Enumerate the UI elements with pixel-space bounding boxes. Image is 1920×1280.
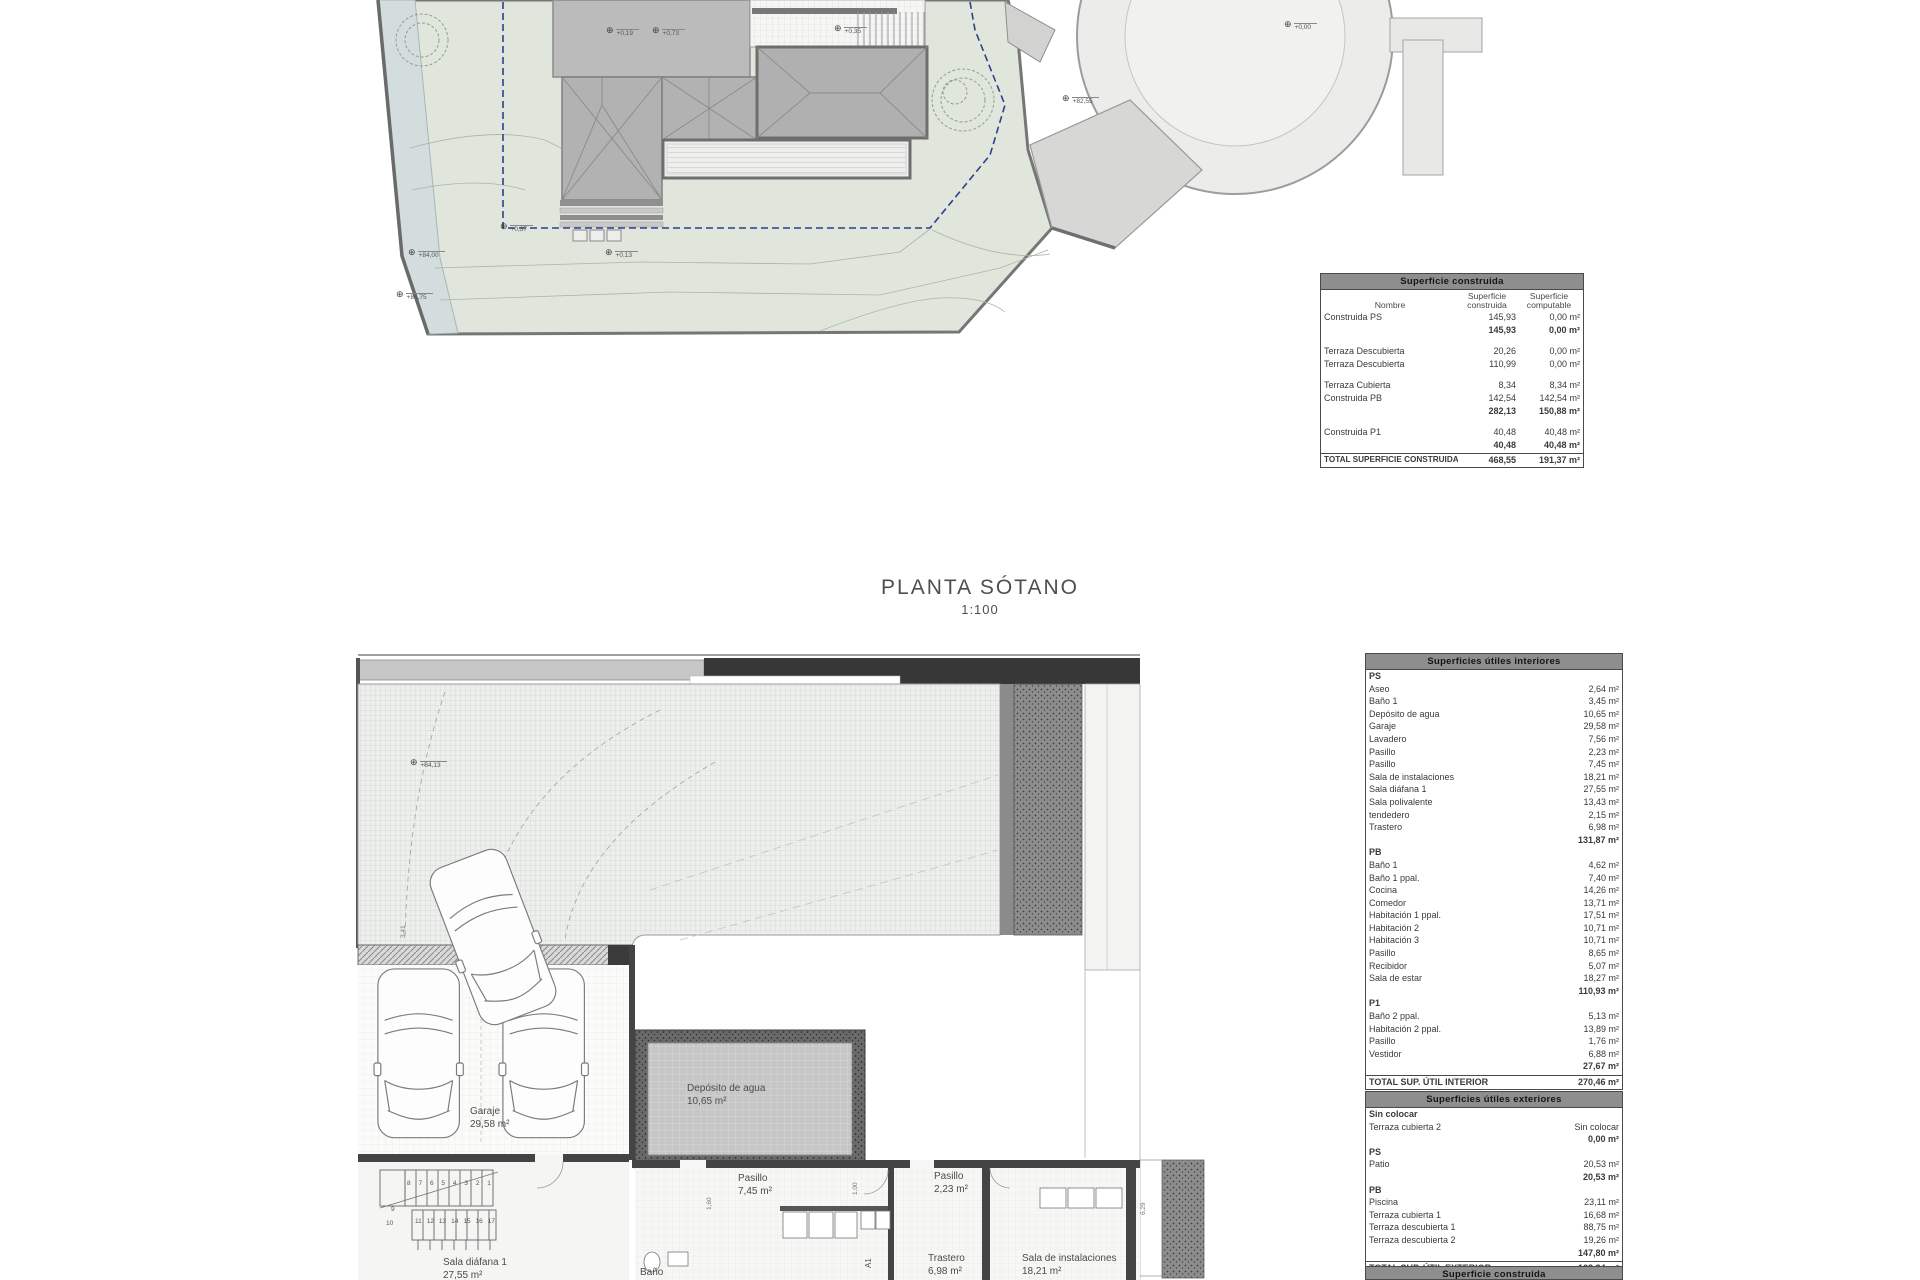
drawing-sheet: ⊕+0,19 ⊕+0,73 ⊕+0,35 ⊕+0,00 ⊕+82,55 ⊕+0,… <box>0 0 1920 1280</box>
elevation-marker: ⊕+0,00 <box>1284 20 1317 32</box>
stair-numbers-upper: 87654321 <box>407 1180 491 1187</box>
stair-number: 2 <box>476 1180 480 1187</box>
table-row: Sala de instalaciones18,21 m² <box>1366 771 1622 784</box>
stair-number: 16 <box>476 1218 483 1225</box>
table-row: Pasillo8,65 m² <box>1366 947 1622 960</box>
stair-number: 15 <box>463 1218 470 1225</box>
stair-number: 1 <box>487 1180 491 1187</box>
stair-number: 3 <box>464 1180 468 1187</box>
table-row: Cocina14,26 m² <box>1366 884 1622 897</box>
table-row: tendedero2,15 m² <box>1366 809 1622 822</box>
benchmark-icon: ⊕ <box>408 248 416 257</box>
table-row: Habitación 2 ppal.13,89 m² <box>1366 1023 1622 1036</box>
dimension-label: 3,41 <box>400 925 407 938</box>
benchmark-icon: ⊕ <box>1284 20 1292 29</box>
table-superficies-utiles-interiores: Superficies útiles interiores PS Aseo2,6… <box>1365 653 1623 1090</box>
table-row: Habitación 1 ppal.17,51 m² <box>1366 909 1622 922</box>
room-label-garaje: Garaje29,58 m² <box>470 1105 509 1131</box>
table-row: Lavadero7,56 m² <box>1366 733 1622 746</box>
elevation-marker: ⊕+0,13 <box>605 248 638 260</box>
elevation-marker: ⊕+0,19 <box>606 26 639 38</box>
table-row: 20,53 m² <box>1366 1171 1622 1184</box>
table-row: Comedor13,71 m² <box>1366 897 1622 910</box>
table-row: Baño 2 ppal.5,13 m² <box>1366 1010 1622 1023</box>
table-body: Construida PS145,930,00 m² 145,930,00 m²… <box>1321 311 1583 467</box>
table-row: Recibidor5,07 m² <box>1366 960 1622 973</box>
elevation-marker: ⊕+84,00 <box>408 248 445 260</box>
table-row: Sin colocar <box>1366 1108 1622 1121</box>
table-row: PS <box>1366 670 1622 683</box>
table-row: 147,80 m² <box>1366 1247 1622 1260</box>
table-title: Superficie construida <box>1366 1267 1622 1280</box>
column-header: Superficie computable <box>1518 292 1580 310</box>
table-row: Terraza cubierta 2Sin colocar <box>1366 1121 1622 1134</box>
table-row: Pasillo2,23 m² <box>1366 746 1622 759</box>
table-row: Terraza descubierta 219,26 m² <box>1366 1234 1622 1247</box>
table-row: Construida PB142,54142,54 m² <box>1321 392 1583 405</box>
benchmark-icon: ⊕ <box>606 26 614 35</box>
table-row: Baño 14,62 m² <box>1366 859 1622 872</box>
table-title: Superficies útiles interiores <box>1366 654 1622 670</box>
dimension-label: 1,60 <box>706 1197 713 1210</box>
room-label-trastero: Trastero6,98 m² <box>928 1252 965 1278</box>
stair-number: 14 <box>451 1218 458 1225</box>
benchmark-icon: ⊕ <box>834 24 842 33</box>
table-row <box>1321 370 1583 379</box>
table-superficie-construida-2: Superficie construida <box>1365 1266 1623 1280</box>
table-body: Sin colocar Terraza cubierta 2Sin coloca… <box>1366 1108 1622 1275</box>
table-row: TOTAL SUP. ÚTIL INTERIOR270,46 m² <box>1366 1075 1622 1089</box>
benchmark-icon: ⊕ <box>652 26 660 35</box>
table-row: Depósito de agua10,65 m² <box>1366 708 1622 721</box>
table-title: Superficies útiles exteriores <box>1366 1092 1622 1108</box>
table-row: 131,87 m² <box>1366 834 1622 847</box>
stair-number: 9 <box>391 1206 395 1213</box>
table-row: 145,930,00 m² <box>1321 324 1583 337</box>
table-row: Vestidor6,88 m² <box>1366 1048 1622 1061</box>
table-row: Trastero6,98 m² <box>1366 821 1622 834</box>
room-label-bano: Baño <box>640 1266 663 1279</box>
stair-number: 6 <box>430 1180 434 1187</box>
table-row: 40,4840,48 m² <box>1321 439 1583 452</box>
stair-number: 17 <box>488 1218 495 1225</box>
stair-number: 10 <box>386 1220 393 1227</box>
elevation-marker: ⊕+0,73 <box>652 26 685 38</box>
table-row: PS <box>1366 1146 1622 1159</box>
table-row: Construida P140,4840,48 m² <box>1321 426 1583 439</box>
plan-scale: 1:100 <box>845 602 1115 617</box>
stair-number: 12 <box>427 1218 434 1225</box>
table-row: Terraza Descubierta110,990,00 m² <box>1321 358 1583 371</box>
table-superficie-construida: Superficie construida Nombre Superficie … <box>1320 273 1584 468</box>
table-row: 27,67 m² <box>1366 1060 1622 1073</box>
table-superficies-utiles-exteriores: Superficies útiles exteriores Sin coloca… <box>1365 1091 1623 1276</box>
room-label-pasillo-223: Pasillo2,23 m² <box>934 1170 968 1196</box>
table-row: Pasillo1,76 m² <box>1366 1035 1622 1048</box>
elevation-marker: ⊕+84,75 <box>396 290 433 302</box>
table-row: 0,00 m² <box>1366 1133 1622 1146</box>
table-column-headers: Nombre Superficie construida Superficie … <box>1321 290 1583 311</box>
table-row: Terraza descubierta 188,75 m² <box>1366 1221 1622 1234</box>
benchmark-icon: ⊕ <box>410 758 418 767</box>
stair-number: 8 <box>407 1180 411 1187</box>
room-label-sala-diafana: Sala diáfana 127,55 m² <box>443 1256 507 1280</box>
table-body: PS Aseo2,64 m² Baño 13,45 m² Depósito de… <box>1366 670 1622 1089</box>
table-row: Sala diáfana 127,55 m² <box>1366 783 1622 796</box>
table-row: Terraza cubierta 116,68 m² <box>1366 1209 1622 1222</box>
stair-number: 4 <box>453 1180 457 1187</box>
table-row: Construida PS145,930,00 m² <box>1321 311 1583 324</box>
table-row: PB <box>1366 1184 1622 1197</box>
table-row: Pasillo7,45 m² <box>1366 758 1622 771</box>
elevation-marker: ⊕+84,13 <box>410 758 447 770</box>
table-row: 282,13150,88 m² <box>1321 405 1583 418</box>
table-row: 110,93 m² <box>1366 985 1622 998</box>
table-row <box>1321 417 1583 426</box>
stair-number: 13 <box>439 1218 446 1225</box>
benchmark-icon: ⊕ <box>500 222 508 231</box>
table-row <box>1321 336 1583 345</box>
stair-numbers-lower: 11121314151617 <box>415 1218 495 1225</box>
plan-title: PLANTA SÓTANO 1:100 <box>845 576 1115 617</box>
table-row: Patio20,53 m² <box>1366 1158 1622 1171</box>
table-row: Sala de estar18,27 m² <box>1366 972 1622 985</box>
table-row: PB <box>1366 846 1622 859</box>
table-row: Terraza Cubierta8,348,34 m² <box>1321 379 1583 392</box>
door-tag-a1: A1 <box>862 1258 875 1268</box>
elevation-marker: ⊕+0,35 <box>834 24 867 36</box>
table-row: Habitación 210,71 m² <box>1366 922 1622 935</box>
table-row: Baño 1 ppal.7,40 m² <box>1366 872 1622 885</box>
table-row: P1 <box>1366 997 1622 1010</box>
table-row: Habitación 310,71 m² <box>1366 934 1622 947</box>
benchmark-icon: ⊕ <box>1062 94 1070 103</box>
stair-number: 7 <box>418 1180 422 1187</box>
room-label-deposito: Depósito de agua10,65 m² <box>687 1082 765 1108</box>
elevation-marker: ⊕+82,55 <box>1062 94 1099 106</box>
benchmark-icon: ⊕ <box>605 248 613 257</box>
dimension-label: 6,29 <box>1140 1202 1147 1215</box>
dimension-label: 1,00 <box>852 1182 859 1195</box>
room-label-sala-instalaciones: Sala de instalaciones18,21 m² <box>1022 1252 1117 1278</box>
table-row: Terraza Descubierta20,260,00 m² <box>1321 345 1583 358</box>
benchmark-icon: ⊕ <box>396 290 404 299</box>
column-header: Nombre <box>1324 300 1456 310</box>
elevation-marker: ⊕+0,37 <box>500 222 533 234</box>
column-header: Superficie construida <box>1456 292 1518 310</box>
table-row: Piscina23,11 m² <box>1366 1196 1622 1209</box>
plan-title-text: PLANTA SÓTANO <box>845 576 1115 600</box>
table-row: Sala polivalente13,43 m² <box>1366 796 1622 809</box>
table-title: Superficie construida <box>1321 274 1583 290</box>
stair-number: 11 <box>415 1218 422 1225</box>
table-row: Aseo2,64 m² <box>1366 683 1622 696</box>
table-row: Baño 13,45 m² <box>1366 695 1622 708</box>
table-row: Garaje29,58 m² <box>1366 720 1622 733</box>
table-row: TOTAL SUPERFICIE CONSTRUIDA:468,55191,37… <box>1321 453 1583 467</box>
room-label-pasillo-745: Pasillo7,45 m² <box>738 1172 772 1198</box>
stair-number: 5 <box>441 1180 445 1187</box>
